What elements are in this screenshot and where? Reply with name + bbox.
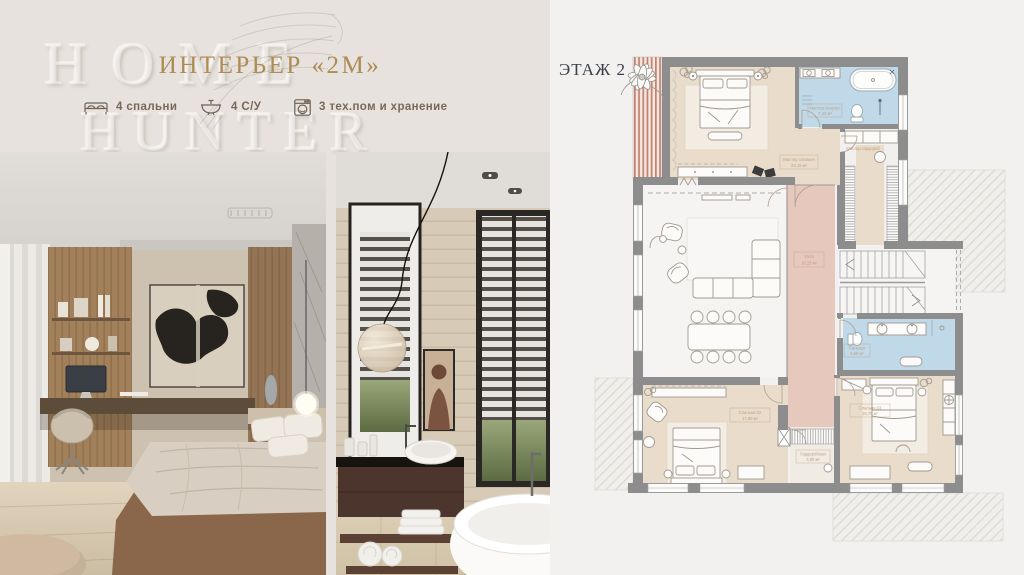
bed-icon	[83, 99, 109, 116]
presentation-page: HOME HUNTER ИНТЕРЬЕР «2М»	[0, 0, 1024, 575]
room-area: 23,15 м²	[791, 163, 808, 168]
feature-bathrooms: 4 С/У	[198, 92, 261, 122]
room-label: Мастер спальня	[783, 157, 815, 162]
sink-icon	[198, 99, 224, 116]
feature-bedrooms: 4 спальни	[83, 92, 177, 122]
feature-row: 4 спальни 4 С/У	[0, 92, 550, 124]
room-area: 5,60 м²	[850, 351, 864, 356]
floor-plan-panel: ЭТАЖ 2	[550, 0, 1024, 575]
staircase	[840, 251, 925, 314]
room-label: Гардеробная	[800, 452, 825, 457]
feature-storage-label: 3 тех.пом и хранение	[319, 101, 447, 113]
room-label: Спальня 02	[739, 410, 762, 415]
room-area: 7,43 м²	[818, 111, 832, 116]
room-label: Санузел	[849, 346, 866, 351]
page-title: ИНТЕРЬЕР «2М»	[85, 52, 455, 80]
room-label: Мастер санузел	[810, 106, 842, 111]
washer-icon	[293, 98, 312, 117]
room-area: 3,90 м²	[806, 457, 820, 462]
bathroom-photo	[336, 152, 550, 575]
room-area: 16,75 м²	[862, 411, 879, 416]
floor-plan-drawing: Мастер спальня 23,15 м² Мастер санузел 7…	[550, 0, 1024, 575]
room-label: Мастер гардероб	[846, 146, 880, 151]
room-label: Спальня 03	[859, 406, 882, 411]
feature-bedrooms-label: 4 спальни	[116, 101, 177, 113]
feature-storage: 3 тех.пом и хранение	[293, 92, 447, 122]
bedroom-photo	[0, 152, 326, 575]
bathroom-photo-art	[336, 152, 550, 575]
feature-bathrooms-label: 4 С/У	[231, 101, 261, 113]
bedroom-photo-art	[0, 152, 326, 575]
room-label: Холл	[804, 254, 814, 259]
left-column: HOME HUNTER ИНТЕРЬЕР «2М»	[0, 0, 550, 575]
room-area: 16,13 м²	[801, 261, 818, 266]
room-area: 17,90 м²	[742, 416, 759, 421]
